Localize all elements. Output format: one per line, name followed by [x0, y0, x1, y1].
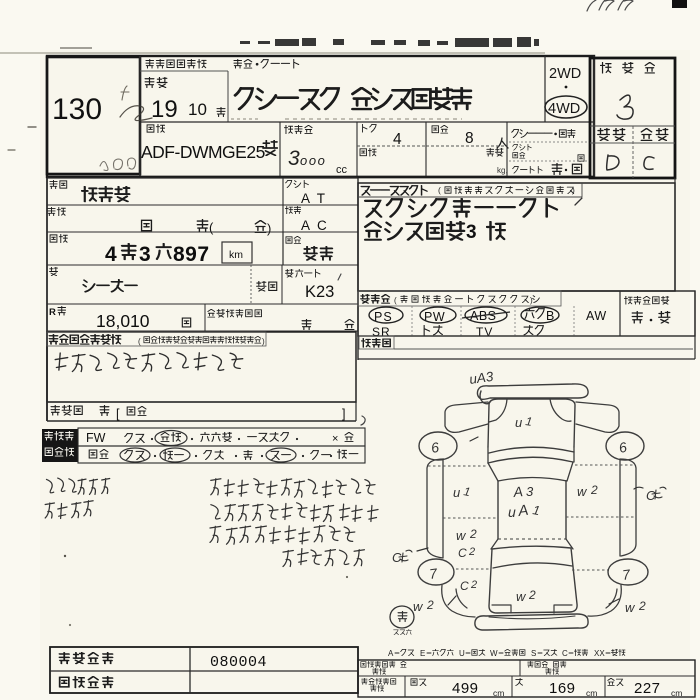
svg-text:o o o: o o o	[300, 153, 325, 168]
svg-text:×: ×	[332, 433, 338, 445]
svg-text:u: u	[508, 504, 516, 520]
svg-text:u: u	[453, 485, 460, 500]
svg-text:499: 499	[452, 680, 479, 697]
svg-text:kg,: kg,	[497, 166, 508, 175]
svg-text:18,010: 18,010	[96, 311, 150, 331]
svg-text:TV: TV	[476, 325, 493, 339]
svg-text:A T: A T	[301, 191, 327, 206]
svg-text:4: 4	[105, 243, 117, 266]
svg-text:2: 2	[590, 483, 598, 497]
svg-text:K23: K23	[305, 283, 334, 301]
svg-text:4: 4	[393, 131, 402, 148]
svg-text:cm: cm	[493, 688, 504, 698]
svg-text:cm: cm	[671, 688, 682, 698]
svg-text:(: (	[394, 296, 397, 305]
svg-text:3: 3	[526, 484, 534, 499]
svg-text:3: 3	[139, 243, 151, 266]
svg-text:w: w	[413, 599, 424, 614]
svg-text:3: 3	[288, 147, 300, 170]
svg-text:2: 2	[528, 588, 536, 602]
svg-text:10: 10	[188, 100, 207, 119]
svg-text:8: 8	[465, 130, 474, 147]
svg-text:R: R	[49, 307, 56, 318]
svg-text:S: S	[531, 649, 536, 658]
svg-text:C: C	[562, 649, 568, 658]
svg-text:A: A	[512, 483, 524, 500]
svg-text:U: U	[459, 649, 465, 658]
svg-text:W: W	[490, 649, 498, 658]
svg-text:169: 169	[549, 680, 576, 697]
svg-text:C: C	[460, 579, 469, 593]
svg-text:2: 2	[468, 546, 475, 558]
svg-text:FW: FW	[86, 431, 106, 445]
svg-text:2: 2	[469, 527, 477, 541]
svg-text:2: 2	[638, 599, 646, 613]
svg-text:XX: XX	[594, 649, 605, 658]
svg-text:SR: SR	[372, 325, 391, 339]
svg-text:ADF-DWMGE25: ADF-DWMGE25	[141, 142, 265, 162]
svg-text:A C: A C	[301, 218, 329, 233]
svg-text:227: 227	[634, 680, 661, 697]
svg-text:897: 897	[173, 243, 210, 266]
svg-text:(: (	[209, 220, 214, 235]
svg-text:E: E	[420, 649, 425, 658]
svg-text:C: C	[458, 546, 467, 560]
svg-text:): )	[572, 185, 575, 195]
svg-text:): )	[267, 221, 271, 236]
svg-text:): )	[262, 337, 265, 346]
svg-text:C: C	[392, 550, 402, 565]
svg-text:2: 2	[426, 598, 434, 612]
svg-text:w: w	[456, 528, 467, 543]
svg-text:A: A	[388, 649, 394, 658]
svg-text:u: u	[515, 415, 522, 430]
svg-text:3: 3	[466, 222, 477, 243]
svg-text:4WD: 4WD	[548, 101, 580, 117]
svg-text:): )	[530, 296, 533, 305]
svg-text:[: [	[116, 407, 120, 421]
svg-text:(: (	[438, 185, 441, 195]
svg-text:080004: 080004	[210, 654, 267, 671]
svg-text:19: 19	[151, 96, 178, 123]
svg-text:]: ]	[342, 407, 345, 421]
svg-text:AW: AW	[586, 309, 607, 323]
svg-text:w: w	[577, 484, 588, 499]
svg-text:130: 130	[52, 93, 102, 126]
svg-text:w: w	[516, 589, 527, 604]
svg-text:C: C	[646, 488, 656, 503]
svg-text:km: km	[229, 249, 243, 261]
svg-text:2WD: 2WD	[549, 66, 581, 82]
svg-text:(: (	[138, 337, 141, 346]
svg-text:cm: cm	[586, 688, 597, 698]
svg-text:w: w	[625, 600, 636, 615]
svg-text:cc: cc	[336, 164, 348, 176]
svg-text:2: 2	[470, 579, 477, 591]
